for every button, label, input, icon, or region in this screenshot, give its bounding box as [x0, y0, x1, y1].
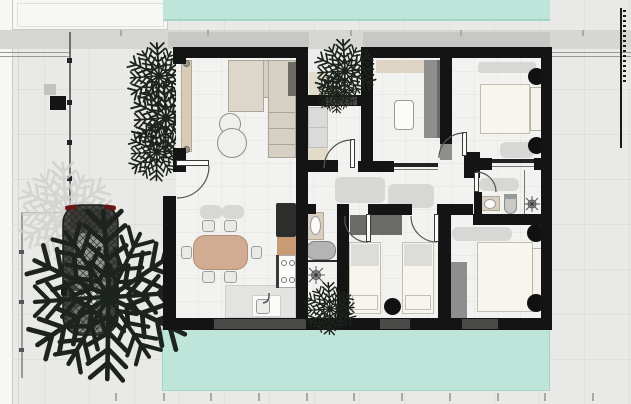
courtyard-rug — [309, 72, 329, 96]
sofa-cushion-line — [269, 112, 295, 113]
bathroom-washbasin — [310, 216, 321, 235]
twin-room-door-leaf — [366, 214, 371, 242]
twin-room-wardrobe — [350, 215, 402, 235]
bed-head-shadow — [478, 62, 536, 73]
double-bed — [477, 242, 533, 312]
doormat — [326, 97, 357, 105]
hall-door-leaf — [350, 139, 355, 168]
sliding-glass-door — [181, 60, 192, 152]
sliding-panel-track — [492, 159, 536, 163]
bed-pillow — [405, 295, 431, 310]
wall-ensuite-bottom — [473, 214, 541, 225]
wall-top-left — [173, 47, 307, 58]
window-kitchen — [214, 319, 306, 329]
dining-chair — [202, 271, 215, 283]
window-double-room — [462, 319, 498, 329]
ensuite-washbasin — [484, 199, 496, 209]
sofa-cushion-line — [269, 128, 295, 129]
wall-ensuite-left — [474, 192, 482, 214]
double-room-door-leaf — [434, 214, 439, 242]
chair-shadow — [200, 205, 222, 219]
bedside-lamp — [384, 298, 401, 315]
wall-bedroom-top-c — [437, 204, 473, 215]
wall-top-right — [365, 47, 552, 58]
blanket-shadow — [404, 244, 432, 266]
closet-shelf-line — [308, 127, 328, 128]
oven-handle — [276, 255, 279, 288]
bathroom-shadow — [479, 178, 519, 191]
bathtub — [306, 241, 336, 260]
wall-twin-double-divider — [438, 215, 451, 318]
washing-machine — [394, 100, 414, 130]
wall-kitchen-spine — [296, 47, 308, 318]
sofa-chaise — [228, 60, 264, 112]
dining-chair — [224, 271, 237, 283]
utility-wardrobe — [424, 60, 440, 138]
chair-shadow — [222, 205, 244, 219]
neighbor-wall-hatching — [623, 10, 626, 84]
floor-plan-canvas — [0, 0, 631, 404]
wall-bath-twin-divider — [337, 204, 349, 318]
shower-glass-screen — [524, 170, 525, 214]
double-room-wardrobe — [451, 262, 467, 318]
blanket-shadow — [351, 244, 379, 266]
dining-chair — [251, 246, 262, 259]
wall-master-bottom — [478, 158, 492, 170]
sliding-panel-rail — [492, 166, 536, 167]
hallway-shadow — [335, 177, 385, 203]
master-door-leaf — [462, 132, 467, 156]
wall-master-bottom-stub — [534, 158, 542, 170]
side-table-dark — [288, 62, 296, 96]
dining-chair — [202, 220, 215, 232]
wood-cabinet — [277, 237, 296, 255]
coffee-table-large — [217, 128, 247, 158]
ensuite-door-leaf — [474, 172, 479, 192]
wall-bath-jamb — [308, 204, 316, 214]
wall-right — [541, 47, 552, 330]
master-bed — [480, 84, 530, 134]
dining-chair — [224, 220, 237, 232]
burner — [289, 277, 295, 283]
dining-table — [193, 235, 248, 270]
neighbor-wall-line — [620, 8, 622, 148]
bed-pillow — [352, 295, 378, 310]
fridge-tall-unit — [276, 203, 296, 237]
window-twin-room — [380, 319, 410, 329]
burner — [289, 260, 295, 266]
sofa-cushion-line — [269, 144, 295, 145]
wall-hall-bottom — [296, 160, 338, 172]
entrance-door-leaf — [176, 160, 209, 166]
bed-head-shadow — [452, 227, 512, 241]
toilet-tank — [504, 194, 517, 199]
wall-bedroom-top-b — [368, 204, 412, 215]
wall-left-lower — [163, 196, 176, 320]
sliding-door-track — [394, 163, 438, 167]
utility-shelf-strip — [376, 60, 424, 73]
wardrobe-niche — [440, 144, 452, 160]
dining-chair — [181, 246, 192, 259]
sink-basin — [256, 299, 270, 314]
burner — [281, 277, 287, 283]
wall-corridor-top-a — [358, 161, 394, 172]
wall-master-left — [440, 58, 452, 144]
wall-left-stub-top — [173, 47, 186, 64]
towel-rail — [304, 260, 337, 262]
wall-courtyard-right — [361, 47, 373, 172]
burner — [281, 260, 287, 266]
sliding-door-rail — [394, 169, 438, 170]
